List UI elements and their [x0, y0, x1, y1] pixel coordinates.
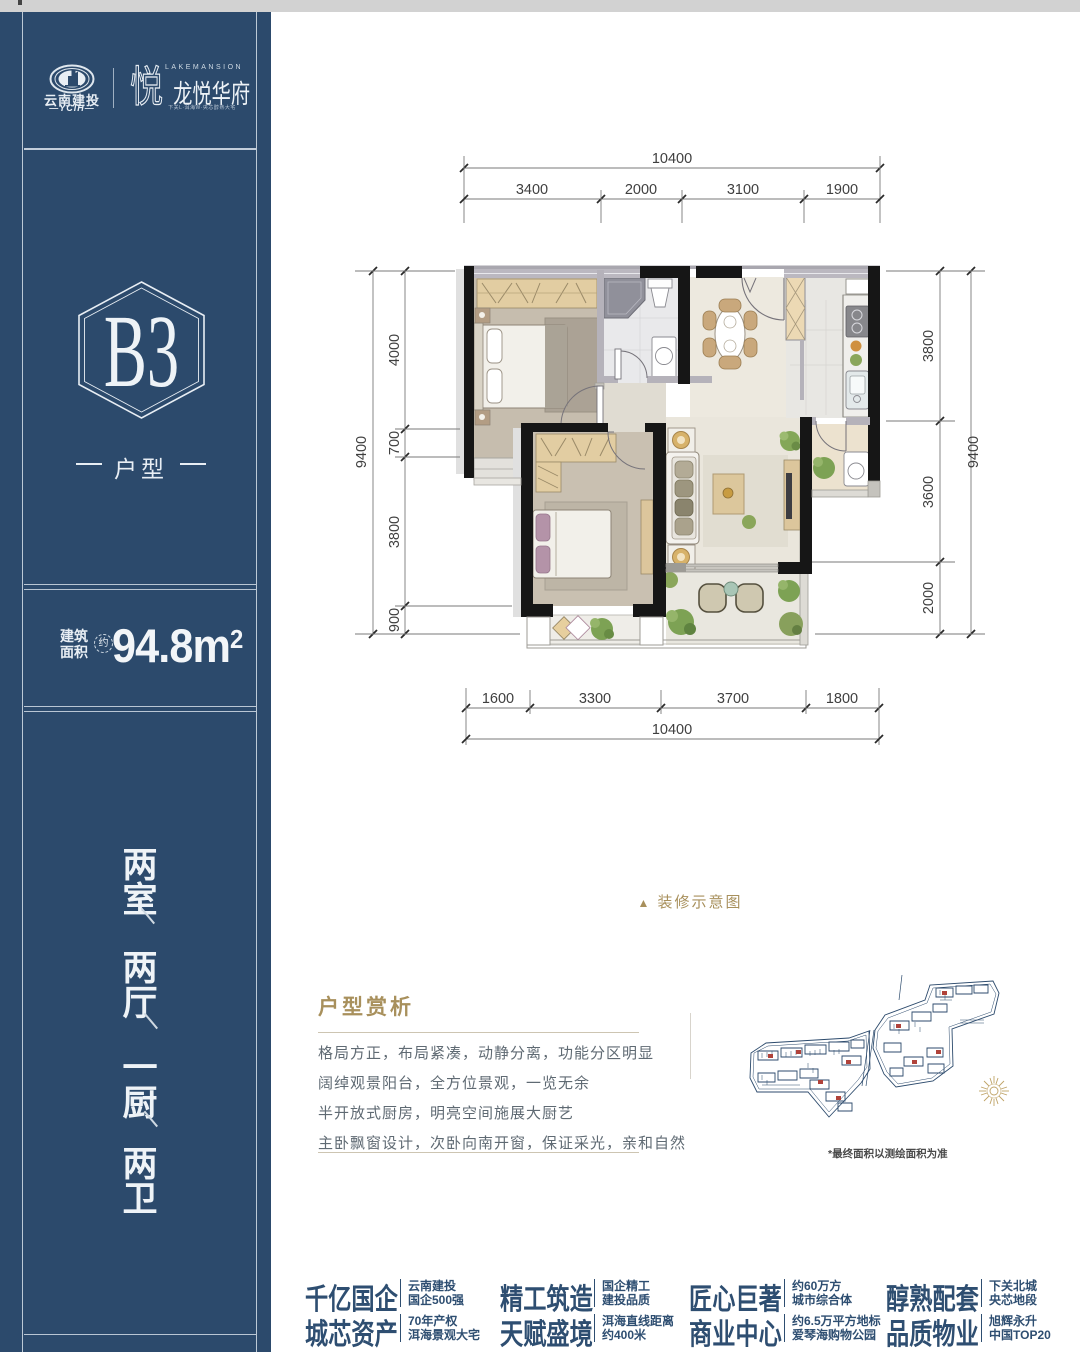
svg-text:1900: 1900 — [826, 182, 858, 198]
svg-text:1600: 1600 — [482, 691, 514, 707]
svg-text:4000: 4000 — [387, 334, 403, 366]
svg-text:9400: 9400 — [966, 436, 982, 468]
svg-text:3800: 3800 — [387, 516, 403, 548]
svg-text:900: 900 — [387, 608, 403, 632]
svg-text:10400: 10400 — [652, 151, 692, 167]
svg-text:3600: 3600 — [921, 476, 937, 508]
svg-text:3300: 3300 — [579, 691, 611, 707]
svg-text:3400: 3400 — [516, 182, 548, 198]
svg-text:1800: 1800 — [826, 691, 858, 707]
svg-text:3800: 3800 — [921, 330, 937, 362]
svg-text:700: 700 — [387, 431, 403, 455]
svg-text:2000: 2000 — [625, 182, 657, 198]
svg-text:9400: 9400 — [354, 436, 370, 468]
svg-text:10400: 10400 — [652, 722, 692, 738]
svg-text:3700: 3700 — [717, 691, 749, 707]
svg-text:3100: 3100 — [727, 182, 759, 198]
svg-text:2000: 2000 — [921, 582, 937, 614]
